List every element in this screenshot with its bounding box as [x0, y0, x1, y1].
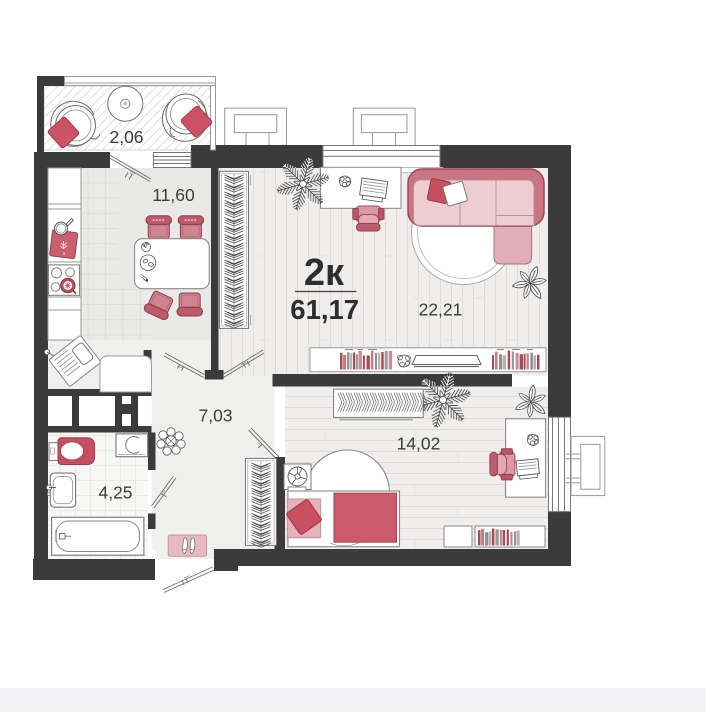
- svg-text:14,02: 14,02: [397, 434, 441, 454]
- svg-text:61,17: 61,17: [290, 294, 359, 325]
- svg-text:2,06: 2,06: [109, 127, 143, 147]
- svg-text:7,03: 7,03: [198, 406, 232, 426]
- svg-text:22,21: 22,21: [419, 300, 463, 320]
- svg-text:11,60: 11,60: [152, 185, 195, 205]
- svg-text:4,25: 4,25: [98, 482, 132, 502]
- svg-text:2к: 2к: [304, 252, 345, 294]
